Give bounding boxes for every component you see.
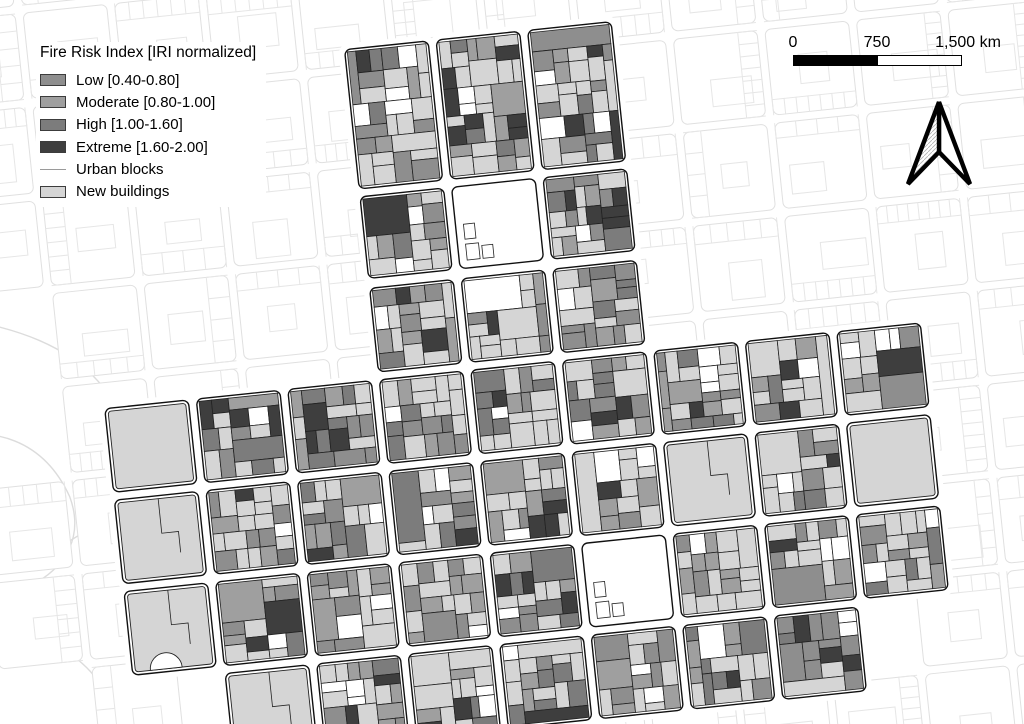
building	[536, 599, 563, 617]
building	[202, 428, 220, 451]
building	[737, 528, 759, 568]
building	[802, 641, 820, 662]
building	[381, 47, 400, 70]
building	[454, 593, 472, 615]
building	[433, 560, 450, 582]
building	[806, 521, 820, 541]
building	[644, 686, 665, 703]
building	[492, 390, 507, 407]
fabric-block	[987, 376, 1024, 470]
building	[421, 416, 443, 435]
building	[571, 420, 593, 442]
building	[713, 687, 742, 704]
building	[718, 551, 740, 571]
building	[246, 636, 269, 653]
building	[469, 323, 489, 337]
building	[362, 623, 396, 649]
building	[597, 481, 622, 500]
urban-block	[379, 371, 471, 463]
building	[404, 585, 422, 612]
building	[451, 52, 469, 68]
building	[618, 511, 641, 529]
building	[885, 559, 906, 577]
legend-swatch	[40, 141, 66, 153]
building	[625, 355, 644, 370]
building	[735, 590, 762, 609]
building	[303, 402, 329, 431]
building	[264, 599, 303, 635]
building	[521, 289, 536, 308]
building	[612, 187, 628, 206]
urban-block	[307, 564, 399, 656]
building	[677, 551, 692, 569]
urban-block	[846, 415, 938, 507]
building	[317, 640, 336, 653]
building	[587, 45, 604, 58]
building	[474, 85, 493, 105]
building	[862, 373, 881, 392]
building	[422, 610, 458, 642]
building	[716, 530, 739, 553]
building	[482, 244, 494, 258]
urban-block	[216, 573, 308, 665]
building	[733, 413, 743, 425]
building	[668, 379, 703, 404]
building	[635, 416, 652, 434]
building	[373, 164, 396, 185]
building	[410, 224, 426, 241]
building	[403, 343, 425, 367]
building	[770, 551, 786, 569]
urban-block	[543, 169, 635, 259]
urban-block	[856, 506, 948, 598]
building	[224, 531, 248, 551]
building	[797, 357, 819, 378]
building	[584, 185, 601, 207]
building	[825, 487, 845, 507]
urban-block	[490, 544, 582, 636]
building	[718, 373, 739, 391]
building	[418, 72, 431, 97]
building	[593, 111, 612, 133]
urban-block	[480, 453, 572, 545]
legend-item-label: Urban blocks	[76, 161, 164, 178]
building	[844, 670, 864, 691]
building	[721, 398, 742, 415]
fabric-block	[144, 275, 237, 369]
building	[457, 86, 475, 104]
building	[754, 403, 780, 422]
building	[437, 432, 456, 456]
urban-block	[317, 655, 409, 724]
building	[449, 575, 463, 595]
building	[697, 624, 726, 660]
building	[699, 365, 719, 383]
building	[670, 403, 691, 421]
building	[414, 683, 454, 710]
building	[432, 504, 454, 524]
building	[712, 672, 728, 690]
building	[531, 364, 554, 380]
building	[469, 58, 499, 86]
building	[555, 269, 579, 290]
building	[536, 84, 560, 104]
urban-block	[683, 617, 775, 709]
urban-block	[225, 665, 317, 724]
building	[690, 667, 704, 684]
building	[413, 118, 435, 133]
building	[455, 66, 472, 88]
building	[578, 268, 591, 287]
building	[569, 399, 592, 422]
building	[544, 513, 560, 536]
fabric-block	[0, 575, 83, 669]
building	[408, 632, 425, 644]
building	[519, 274, 534, 291]
building	[717, 593, 737, 611]
building	[614, 263, 635, 281]
building	[682, 593, 698, 615]
building	[448, 125, 467, 146]
building	[393, 232, 413, 259]
urban-block	[288, 381, 380, 473]
building	[689, 533, 706, 555]
building	[577, 239, 606, 253]
urban-block-outline	[581, 535, 673, 627]
fabric-block	[755, 0, 848, 22]
building	[401, 563, 419, 586]
building	[430, 237, 448, 250]
building	[823, 466, 843, 489]
urban-block	[452, 178, 544, 268]
building	[547, 191, 567, 213]
building	[594, 382, 615, 398]
building	[697, 347, 721, 367]
building	[424, 523, 442, 549]
scale-bar: 0 750 1,500 km	[778, 34, 1024, 74]
building	[330, 521, 347, 545]
building	[260, 545, 278, 566]
building	[353, 103, 371, 126]
urban-block	[673, 525, 765, 617]
building	[900, 511, 918, 535]
building	[624, 323, 642, 343]
fabric-block	[663, 0, 756, 31]
building	[685, 626, 698, 641]
building	[333, 544, 349, 559]
new-buildings-parcel	[667, 437, 753, 523]
legend-swatch	[40, 74, 66, 86]
building	[424, 221, 446, 239]
building	[620, 479, 638, 498]
building	[215, 550, 238, 572]
building	[780, 642, 806, 682]
new-buildings-parcel	[108, 403, 194, 489]
building	[725, 644, 742, 657]
building	[567, 46, 588, 61]
urban-block	[663, 434, 755, 526]
building	[334, 448, 367, 466]
urban-block	[360, 188, 452, 278]
building	[442, 595, 456, 612]
building	[335, 663, 349, 682]
building	[448, 374, 463, 391]
building	[825, 583, 854, 600]
building	[218, 490, 237, 517]
building	[636, 446, 655, 467]
legend-item-extreme: Extreme [1.60-2.00]	[40, 136, 256, 158]
building	[596, 658, 632, 690]
building	[570, 652, 585, 681]
urban-block	[124, 583, 216, 675]
building	[539, 335, 550, 352]
building	[502, 509, 521, 530]
building	[777, 616, 795, 634]
building	[554, 61, 571, 83]
building	[258, 528, 276, 547]
fabric-block	[683, 124, 776, 218]
building	[307, 547, 334, 562]
building	[274, 522, 292, 537]
building	[372, 658, 399, 676]
legend-item-label: Moderate [0.80-1.00]	[76, 94, 215, 111]
building	[244, 619, 268, 638]
building	[821, 661, 844, 678]
building	[611, 687, 635, 705]
legend-items: Low [0.40-0.80]Moderate [0.80-1.00]High …	[40, 69, 256, 203]
building	[596, 601, 611, 618]
building	[504, 528, 531, 542]
building	[413, 259, 432, 271]
building	[474, 369, 506, 393]
building	[592, 423, 619, 439]
building	[564, 114, 585, 137]
building	[831, 536, 850, 560]
building	[421, 328, 448, 353]
building	[406, 193, 422, 207]
building	[777, 339, 797, 362]
building	[431, 249, 449, 269]
building	[213, 412, 231, 429]
building	[594, 634, 630, 662]
building	[645, 702, 665, 712]
legend-item-label: Low [0.40-0.80]	[76, 72, 179, 89]
building	[833, 558, 852, 584]
building	[481, 344, 502, 358]
building	[638, 466, 656, 479]
building	[369, 102, 387, 125]
building	[565, 210, 578, 227]
building	[507, 113, 527, 128]
building	[358, 70, 385, 89]
legend-item-moderate: Moderate [0.80-1.00]	[40, 91, 256, 113]
building	[420, 402, 435, 418]
building	[538, 102, 561, 119]
building	[551, 468, 565, 489]
building	[537, 614, 561, 630]
building	[600, 515, 620, 531]
building	[402, 420, 423, 437]
building	[377, 234, 395, 259]
building	[395, 287, 411, 305]
building	[726, 670, 741, 688]
building	[758, 431, 802, 476]
building	[464, 275, 523, 314]
building	[802, 468, 825, 491]
building	[238, 515, 256, 531]
building	[632, 674, 653, 690]
building	[346, 679, 365, 698]
building	[677, 349, 699, 368]
building	[612, 703, 635, 715]
building	[522, 458, 540, 480]
building	[506, 681, 524, 706]
new-buildings-parcel	[118, 495, 204, 581]
building	[618, 418, 637, 437]
building	[495, 574, 512, 597]
building	[372, 288, 397, 307]
building	[591, 358, 612, 373]
building	[795, 337, 817, 360]
building	[273, 457, 286, 473]
urban-block	[528, 22, 626, 170]
building	[236, 500, 256, 517]
building	[434, 468, 451, 492]
building	[516, 156, 532, 170]
north-arrow-icon	[900, 96, 978, 192]
building	[594, 450, 622, 483]
building	[821, 612, 841, 640]
building	[506, 393, 523, 414]
building	[336, 614, 363, 639]
fabric-block	[235, 266, 328, 360]
building	[254, 513, 274, 530]
building	[411, 239, 431, 261]
building	[422, 202, 444, 223]
building	[689, 401, 704, 418]
legend-item-high: High [1.00-1.60]	[40, 114, 256, 136]
building	[753, 652, 770, 679]
urban-block	[345, 41, 443, 189]
building	[591, 90, 609, 113]
building	[560, 579, 576, 593]
building	[359, 414, 375, 437]
building	[612, 603, 624, 617]
building	[925, 509, 940, 529]
map-legend: Fire Risk Index [IRI normalized] Low [0.…	[36, 42, 266, 207]
building	[752, 376, 770, 392]
building	[409, 285, 426, 303]
building	[411, 97, 434, 121]
building	[480, 435, 495, 451]
building	[334, 637, 364, 652]
building	[452, 502, 475, 518]
building	[547, 419, 561, 444]
building	[858, 330, 877, 357]
urban-block	[553, 260, 645, 352]
building	[509, 552, 532, 574]
building	[528, 515, 546, 539]
building	[347, 662, 360, 680]
building	[372, 608, 395, 625]
urban-block	[562, 352, 654, 444]
scale-tick-label-0: 0	[789, 34, 798, 52]
building	[619, 458, 639, 480]
building	[531, 547, 575, 583]
building	[602, 44, 612, 61]
building	[319, 665, 336, 684]
building	[798, 549, 822, 567]
building	[639, 505, 661, 527]
building	[478, 695, 496, 718]
building	[739, 566, 760, 581]
urban-block	[297, 472, 389, 564]
building	[363, 195, 411, 237]
building	[368, 503, 383, 524]
map-page: Fire Risk Index [IRI normalized] Low [0.…	[0, 0, 1024, 724]
building	[562, 332, 586, 350]
building	[565, 360, 593, 382]
building	[450, 39, 468, 53]
building	[739, 619, 768, 655]
building	[616, 309, 641, 326]
building	[276, 535, 294, 550]
building	[357, 703, 379, 724]
building	[434, 401, 452, 417]
building	[300, 482, 316, 503]
building	[324, 386, 343, 407]
building	[804, 489, 827, 510]
building	[463, 223, 476, 239]
building	[719, 345, 737, 365]
building	[218, 580, 266, 623]
building	[492, 418, 510, 435]
urban-block	[408, 646, 500, 724]
building	[417, 562, 435, 584]
building	[590, 223, 605, 241]
urban-block	[461, 270, 553, 362]
building	[594, 581, 607, 597]
urban-block	[591, 626, 683, 718]
building	[884, 513, 902, 537]
building	[424, 283, 443, 301]
building	[364, 522, 387, 555]
building	[599, 189, 613, 208]
building	[474, 666, 494, 687]
building	[211, 515, 239, 534]
building	[559, 93, 579, 116]
building	[402, 330, 423, 345]
building	[406, 610, 424, 633]
legend-swatch	[40, 119, 66, 131]
building	[593, 300, 616, 319]
building	[542, 138, 563, 167]
building	[269, 648, 288, 659]
building	[504, 659, 521, 682]
legend-title: Fire Risk Index [IRI normalized]	[40, 44, 256, 62]
building	[509, 422, 535, 448]
building	[676, 535, 691, 553]
urban-block	[196, 390, 288, 482]
building	[876, 543, 889, 562]
building	[491, 81, 526, 116]
urban-block	[398, 554, 490, 646]
building	[842, 654, 862, 671]
building	[400, 313, 422, 332]
building	[377, 329, 394, 354]
building	[463, 557, 482, 575]
legend-item-low: Low [0.40-0.80]	[40, 69, 256, 91]
